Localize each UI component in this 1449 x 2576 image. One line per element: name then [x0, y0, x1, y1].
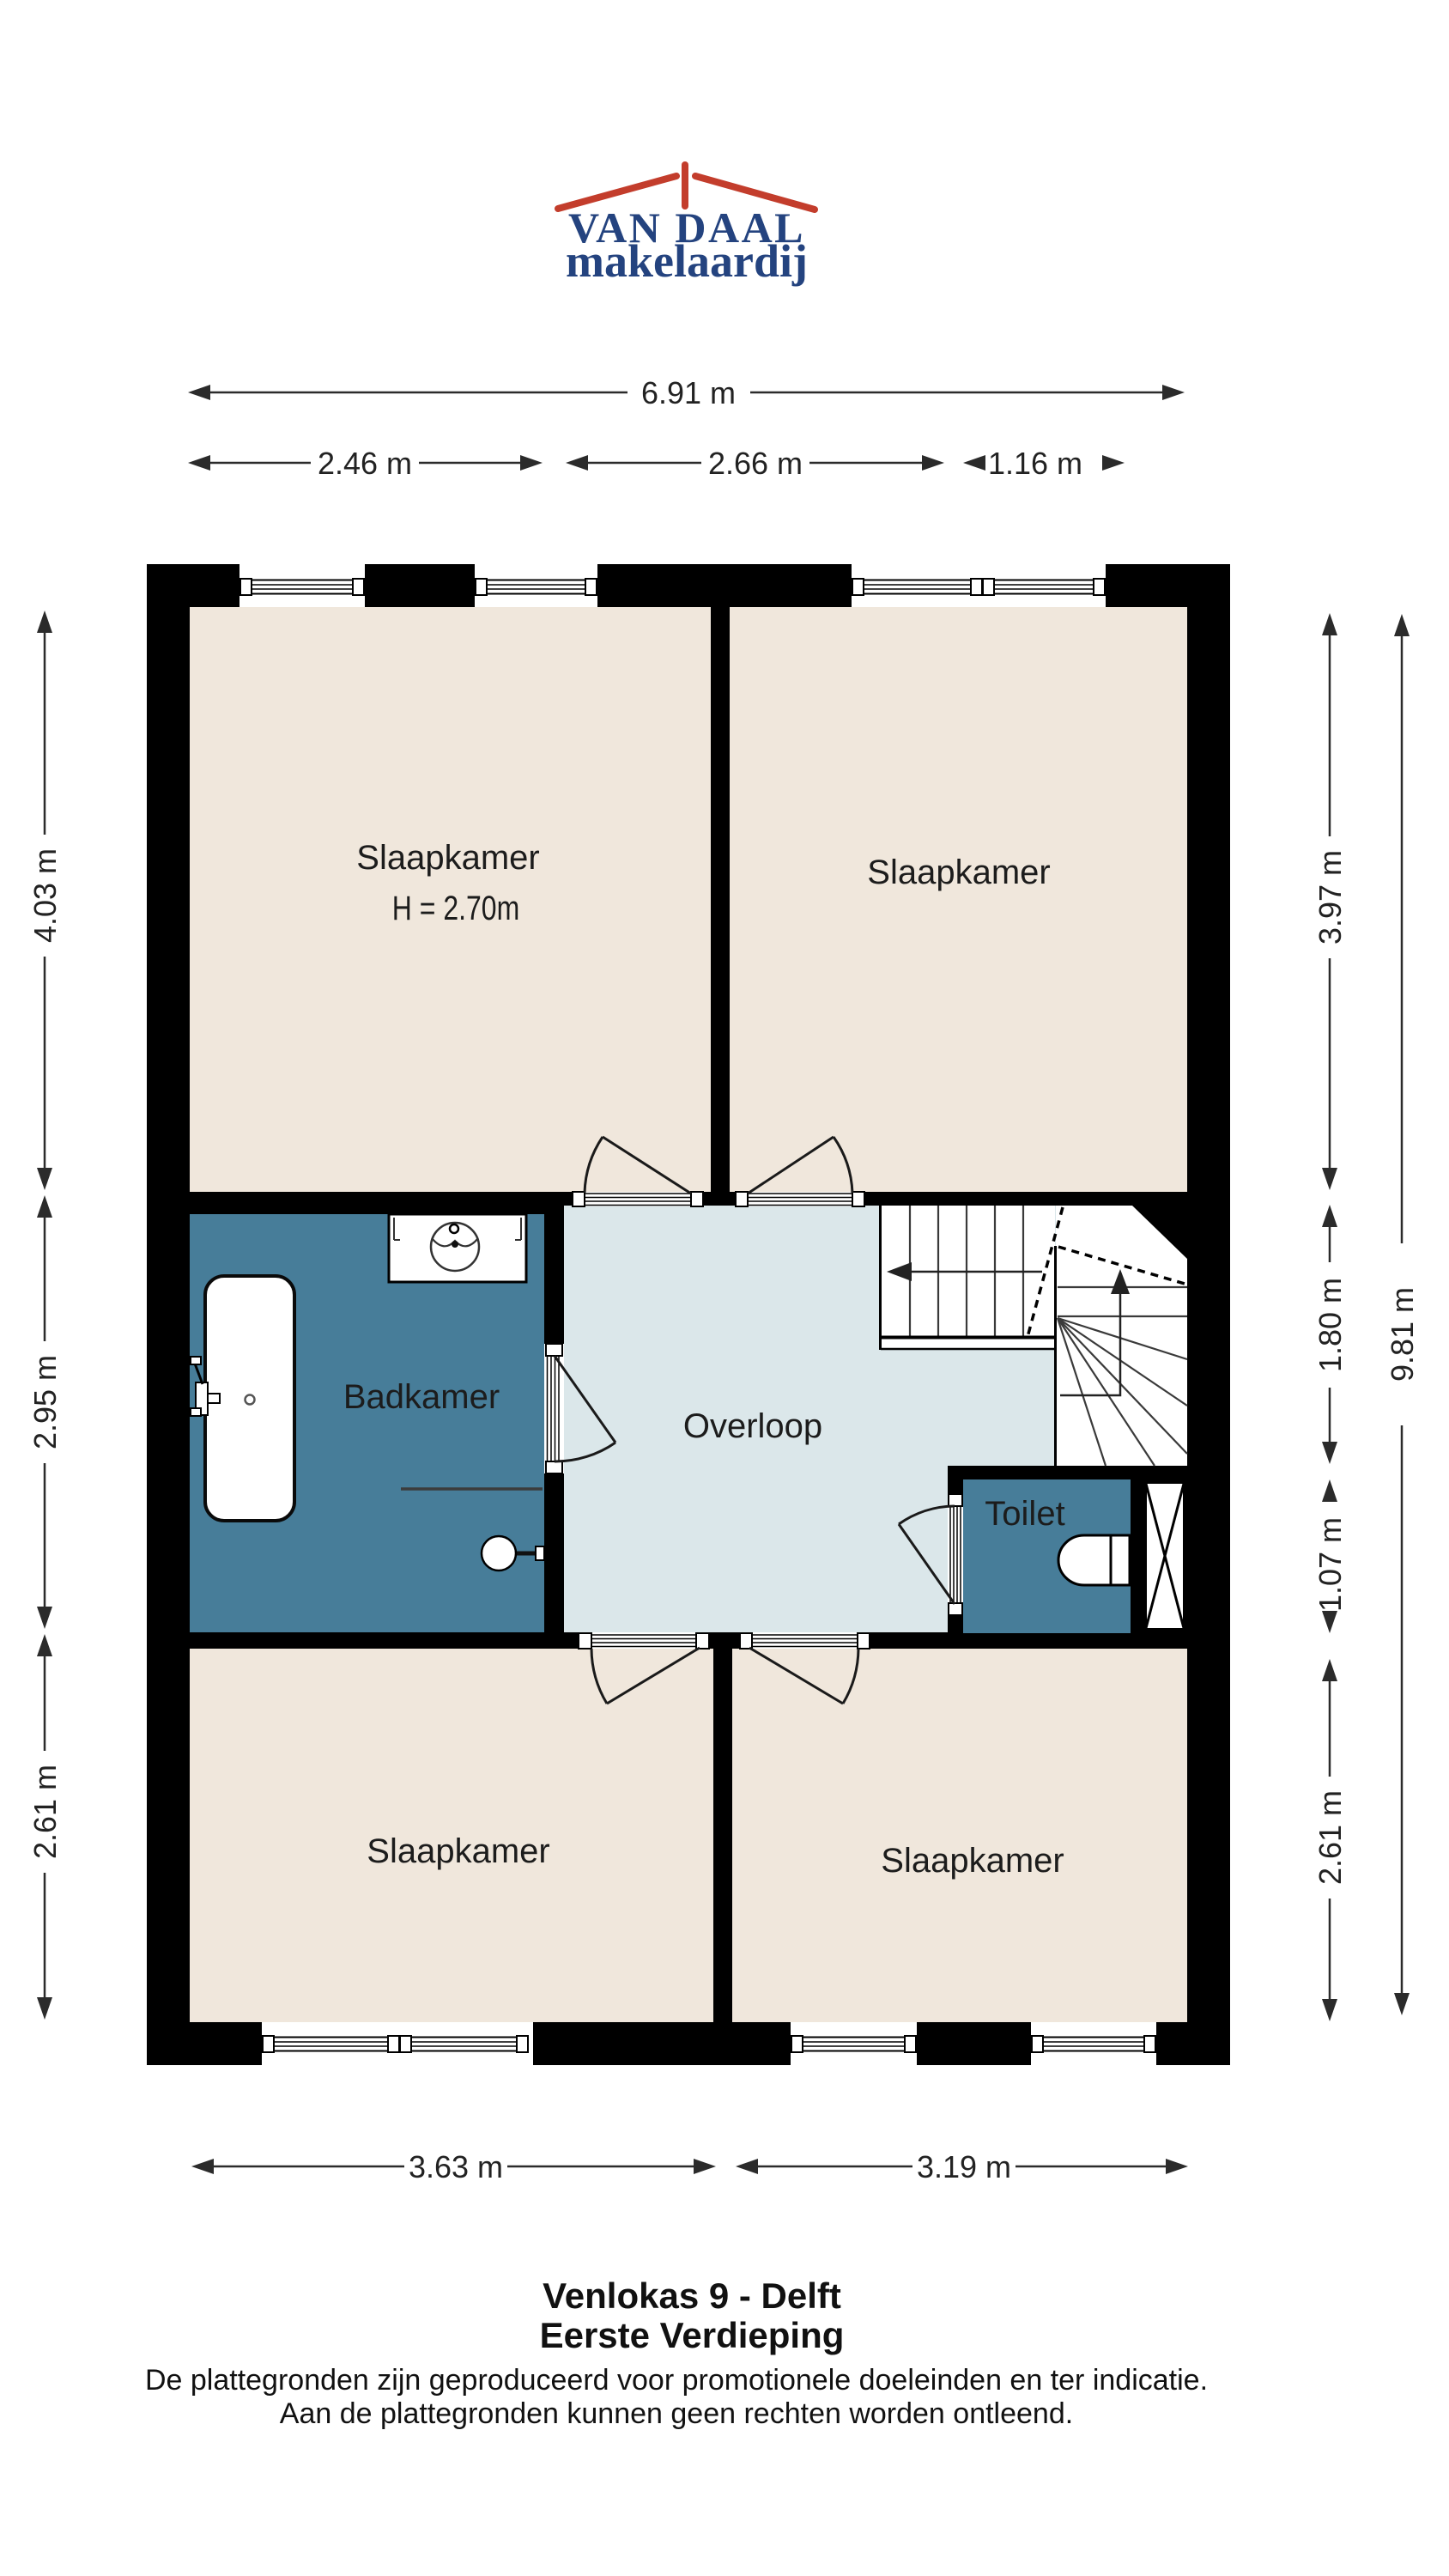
svg-text:H = 2.70m: H = 2.70m	[392, 889, 520, 927]
svg-text:1.80 m: 1.80 m	[1313, 1278, 1348, 1372]
svg-text:1.16 m: 1.16 m	[988, 446, 1082, 481]
svg-text:Slaapkamer: Slaapkamer	[867, 854, 1050, 891]
svg-text:3.97 m: 3.97 m	[1313, 850, 1348, 945]
svg-text:Venlokas 9 - Delft: Venlokas 9 - Delft	[543, 2275, 841, 2316]
svg-text:Badkamer: Badkamer	[343, 1378, 500, 1416]
svg-text:2.61 m: 2.61 m	[1313, 1790, 1348, 1885]
svg-text:9.81 m: 9.81 m	[1385, 1287, 1420, 1382]
svg-text:2.66 m: 2.66 m	[708, 446, 803, 481]
svg-text:2.61 m: 2.61 m	[27, 1765, 63, 1859]
svg-text:Slaapkamer: Slaapkamer	[881, 1842, 1064, 1880]
svg-text:Overloop: Overloop	[683, 1407, 822, 1445]
svg-text:2.46 m: 2.46 m	[318, 446, 412, 481]
svg-text:3.19 m: 3.19 m	[917, 2149, 1011, 2184]
svg-text:makelaardij: makelaardij	[566, 235, 808, 287]
svg-text:6.91 m: 6.91 m	[641, 375, 736, 410]
svg-text:Aan de plattegronden kunnen ge: Aan de plattegronden kunnen geen rechten…	[280, 2397, 1073, 2430]
svg-text:De plattegronden zijn geproduc: De plattegronden zijn geproduceerd voor …	[145, 2364, 1208, 2397]
svg-text:Toilet: Toilet	[985, 1495, 1064, 1533]
svg-text:3.63 m: 3.63 m	[409, 2149, 503, 2184]
svg-text:2.95 m: 2.95 m	[27, 1355, 63, 1449]
svg-text:Slaapkamer: Slaapkamer	[367, 1832, 549, 1870]
svg-text:1.07 m: 1.07 m	[1313, 1517, 1348, 1612]
svg-text:4.03 m: 4.03 m	[27, 848, 63, 943]
svg-text:Eerste Verdieping: Eerste Verdieping	[540, 2315, 845, 2355]
svg-text:Slaapkamer: Slaapkamer	[356, 839, 539, 877]
